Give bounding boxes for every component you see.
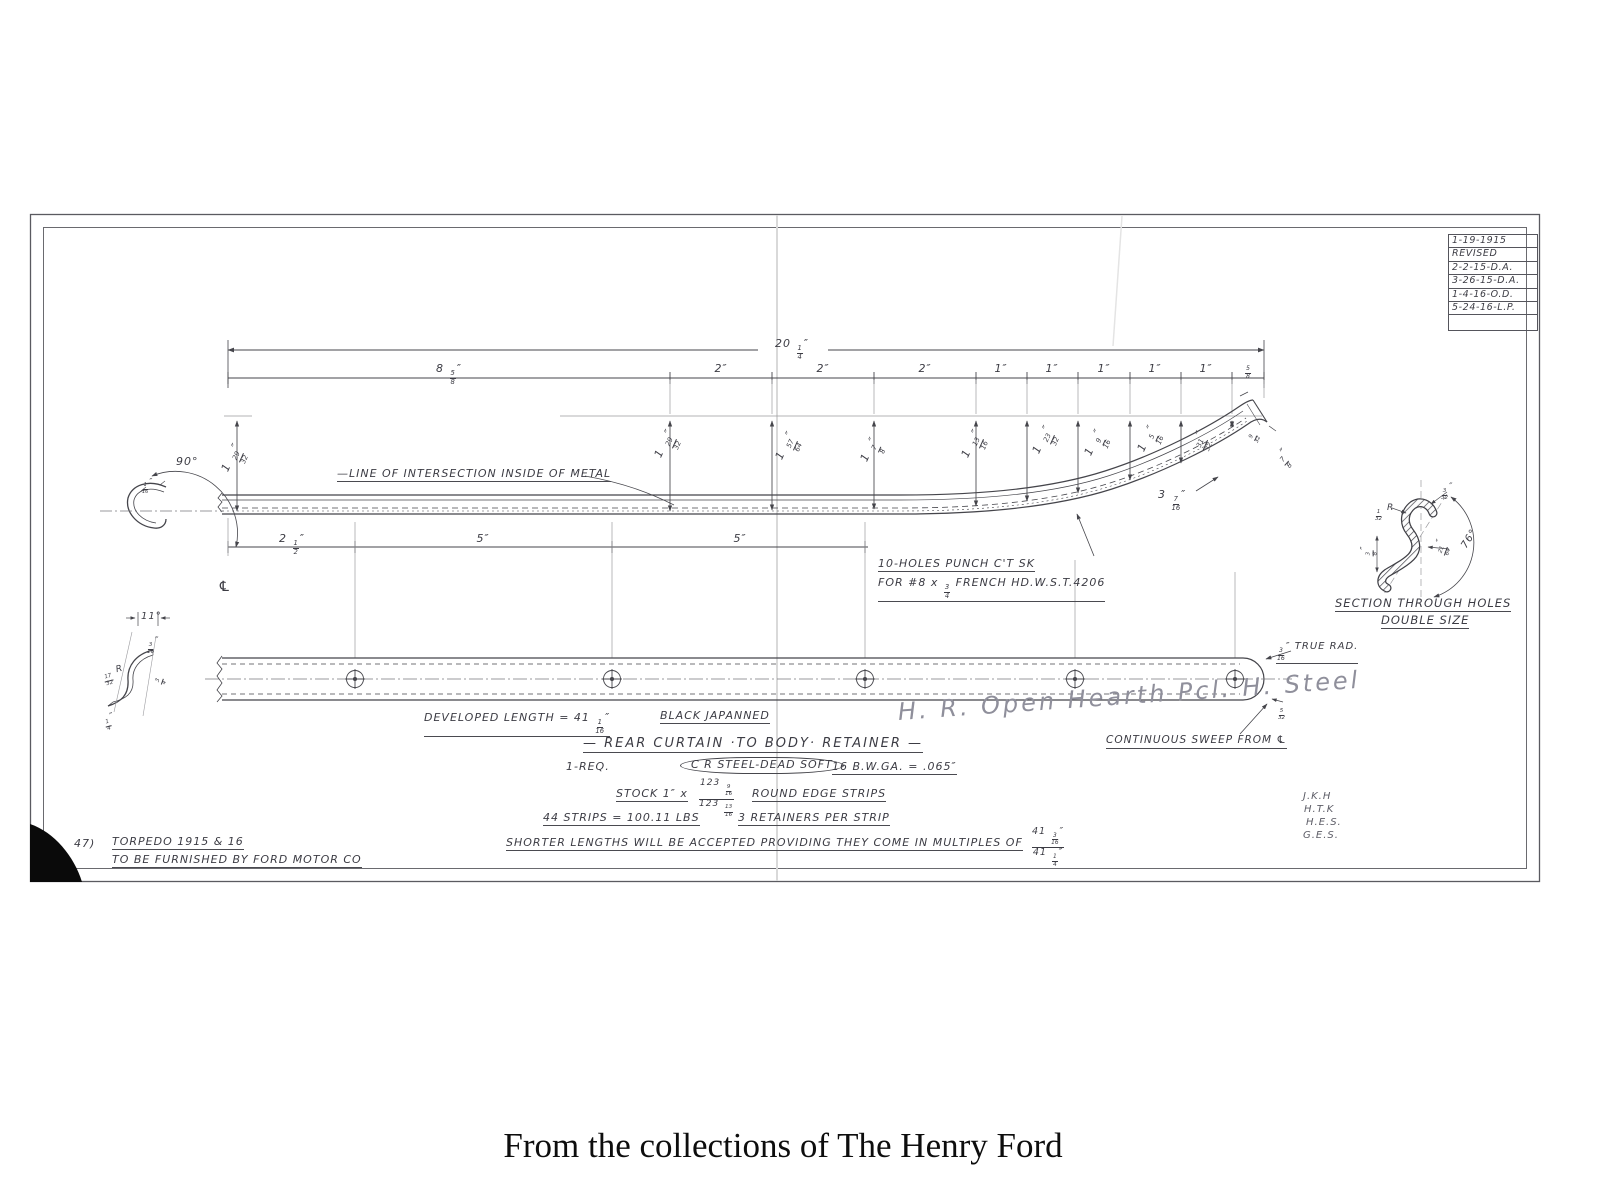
note-multiples: 41 316″41 14″ [1032, 827, 1064, 868]
note-holes-1: 10-HOLES PUNCH C'T SK [878, 558, 1035, 572]
dim-hole-spacing-1: 2 12″ [279, 533, 305, 556]
section-through-holes [1377, 480, 1474, 602]
section-title: SECTION THROUGH HOLES [1335, 597, 1511, 612]
dim-left-section-1: 316″ [146, 637, 159, 656]
part-number: 47) [74, 838, 95, 850]
dim-section-2: 38″ [1361, 545, 1380, 557]
angle-90: 90° [176, 456, 199, 468]
dim-seg-9: 1″ [1199, 363, 1212, 375]
note-developed-length: DEVELOPED LENGTH = 41 116″ [424, 712, 610, 737]
note-stock-sizes: 123 916123 1316 [699, 779, 734, 818]
dim-overall-length: 20 14″ [775, 338, 809, 361]
note-true-radius: 316″ TRUE RAD. [1276, 641, 1358, 664]
scanned-blueprint-page: 1-19-1915 REVISED 2-2-15-D.A. 3-26-15-D.… [0, 0, 1600, 1200]
angle-11: 11° [141, 611, 162, 622]
revision-row: 1-4-16-O.D. [1449, 289, 1537, 302]
hook-end-section [100, 471, 238, 547]
side-profile-view [218, 392, 1276, 514]
part-title: — REAR CURTAIN ·TO BODY· RETAINER — [583, 737, 923, 753]
note-material: C R STEEL-DEAD SOFT [680, 757, 844, 774]
dim-seg-8: 1″ [1148, 363, 1161, 375]
note-finish: BLACK JAPANNED [660, 710, 770, 724]
dim-seg-5: 1″ [994, 363, 1007, 375]
note-gauge: 16 B.W.GA. = .065″ [832, 761, 957, 775]
note-holes-2: FOR #8 x 34 FRENCH HD.W.S.T.4206 [878, 577, 1105, 602]
revision-row: 3-26-15-D.A. [1449, 275, 1537, 288]
revision-row: REVISED [1449, 248, 1537, 261]
note-strip-weight: 44 STRIPS = 100.11 LBS [543, 812, 700, 826]
revision-row: 1-19-1915 [1449, 235, 1537, 248]
note-retainers: 3 RETAINERS PER STRIP [738, 812, 890, 826]
dim-section-1: 332″ [1440, 483, 1453, 502]
revision-row-empty [1449, 315, 1537, 330]
centerline-symbol: ℄ [218, 580, 232, 595]
sheet-border [31, 215, 1540, 882]
note-shorter-lengths: SHORTER LENGTHS WILL BE ACCEPTED PROVIDI… [506, 837, 1023, 851]
dim-hole-spacing-3: 5″ [733, 533, 746, 545]
note-torpedo: TORPEDO 1915 & 16 [112, 836, 244, 850]
revision-row: 5-24-16-L.P. [1449, 302, 1537, 315]
revision-row: 2-2-15-D.A. [1449, 262, 1537, 275]
fold-crease [30, 215, 1122, 882]
dim-hook-thickness: 116″ [141, 478, 153, 495]
dim-seg-1: 8 58″ [436, 363, 462, 386]
note-furnished: TO BE FURNISHED BY FORD MOTOR CO [112, 854, 362, 868]
dim-seg-4: 2″ [918, 363, 931, 375]
dim-curve-offset: 3 716″ [1158, 489, 1186, 512]
dim-end-1: 532 [1277, 703, 1286, 722]
revision-table: 1-19-1915 REVISED 2-2-15-D.A. 3-26-15-D.… [1448, 234, 1538, 331]
extension-lines [224, 380, 1264, 416]
archive-caption: From the collections of The Henry Ford [503, 1126, 1062, 1166]
dim-hole-spacing-2: 5″ [476, 533, 489, 545]
dim-seg-6: 1″ [1045, 363, 1058, 375]
note-stock-post: ROUND EDGE STRIPS [752, 788, 886, 802]
dim-seg-2: 2″ [714, 363, 727, 375]
note-continuous-sweep: CONTINUOUS SWEEP FROM ℄ [1106, 735, 1287, 749]
note-quantity: 1-REQ. [566, 761, 610, 773]
dim-seg-10: 58 [1244, 359, 1252, 380]
initials-2: H.T.K [1304, 804, 1334, 815]
dim-seg-3: 2″ [816, 363, 829, 375]
dim-seg-7: 1″ [1097, 363, 1110, 375]
initials-4: G.E.S. [1303, 830, 1339, 841]
dim-section-radius: 132 R [1374, 504, 1394, 523]
note-line-of-intersection: —LINE OF INTERSECTION INSIDE OF METAL [337, 468, 611, 482]
initials-3: H.E.S. [1306, 817, 1342, 828]
initials-1: J.K.H [1303, 791, 1331, 802]
section-subtitle: DOUBLE SIZE [1381, 614, 1469, 629]
scan-corner-blob [30, 824, 82, 882]
hole-spacing-dimension [228, 518, 868, 556]
note-stock-pre: STOCK 1″ x [616, 788, 688, 802]
